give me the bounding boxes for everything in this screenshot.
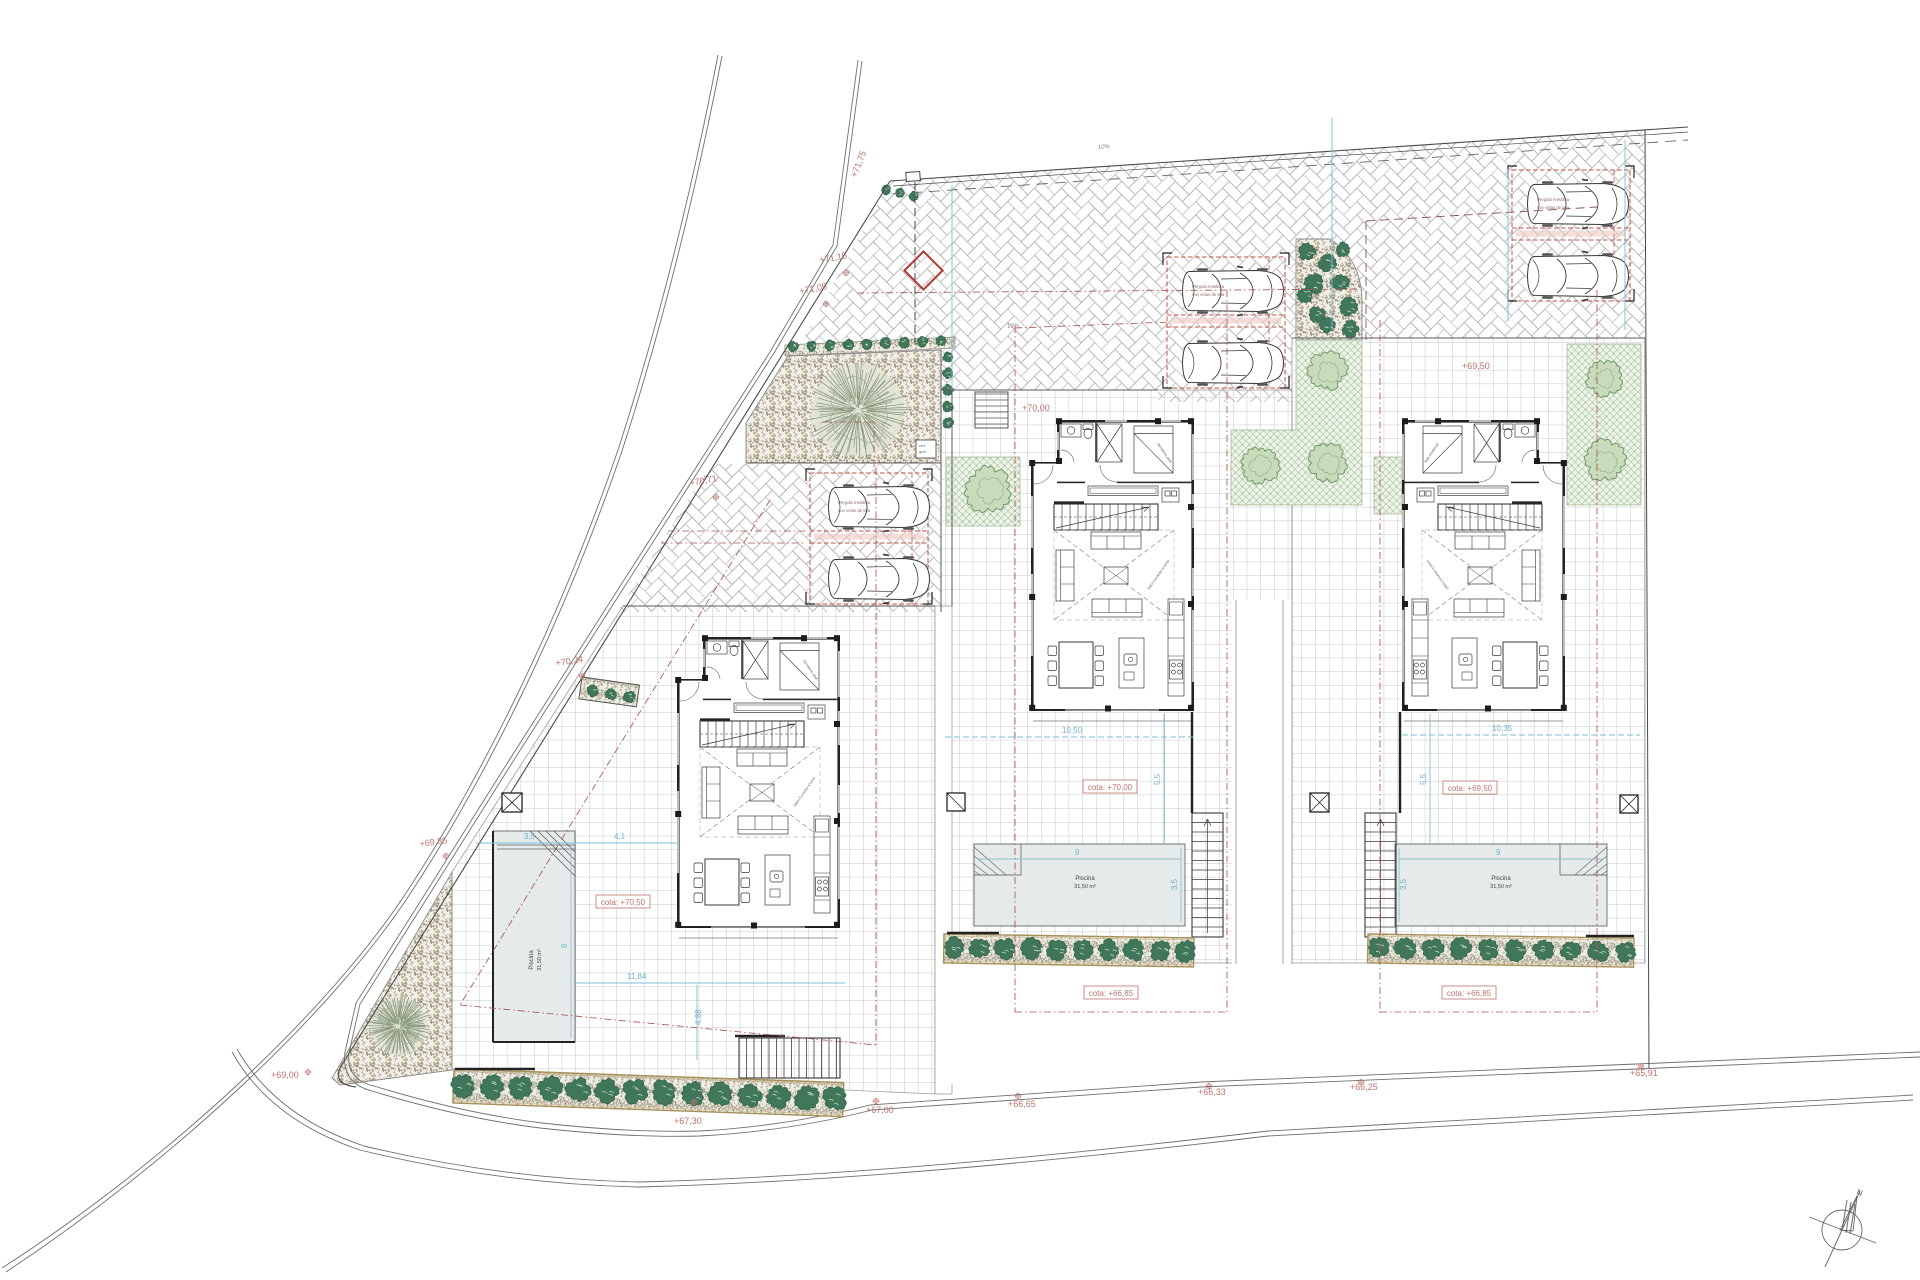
svg-text:Piscina: Piscina	[1491, 876, 1511, 882]
svg-text:31,50 m²: 31,50 m²	[537, 949, 543, 971]
svg-text:10,35: 10,35	[1492, 724, 1513, 733]
svg-text:+67,30: +67,30	[674, 1116, 702, 1126]
svg-text:9: 9	[1496, 848, 1501, 857]
svg-text:cota: +69,50: cota: +69,50	[1448, 784, 1493, 793]
svg-text:+69,50: +69,50	[1462, 361, 1490, 371]
svg-text:4,1: 4,1	[614, 832, 626, 841]
svg-text:6: 6	[560, 943, 569, 948]
svg-text:con velas de tela: con velas de tela	[838, 508, 871, 513]
svg-text:cota: +66,85: cota: +66,85	[1447, 989, 1492, 998]
svg-text:+70,00: +70,00	[1022, 403, 1050, 413]
svg-text:5,5: 5,5	[1419, 773, 1428, 785]
svg-text:Piscina: Piscina	[1075, 876, 1095, 882]
svg-text:10%: 10%	[1007, 323, 1020, 330]
svg-text:Pergola metálica: Pergola metálica	[838, 500, 871, 505]
svg-text:con velas de tela: con velas de tela	[1192, 292, 1225, 297]
svg-text:31,50 m²: 31,50 m²	[1074, 884, 1096, 890]
svg-text:+66,65: +66,65	[1008, 1099, 1036, 1109]
svg-text:+69,00: +69,00	[271, 1070, 299, 1080]
svg-text:4,88: 4,88	[694, 1009, 703, 1025]
svg-text:gral: gral	[919, 449, 926, 454]
svg-text:cota: +70,50: cota: +70,50	[601, 898, 646, 907]
svg-text:11,84: 11,84	[627, 972, 647, 981]
svg-text:3,5: 3,5	[524, 832, 536, 841]
svg-text:5,5: 5,5	[1153, 773, 1162, 785]
svg-text:10,50: 10,50	[1062, 726, 1083, 735]
svg-text:+66,33: +66,33	[1198, 1087, 1226, 1097]
svg-text:cota: +70,00: cota: +70,00	[1088, 783, 1133, 792]
svg-text:cota: +66,85: cota: +66,85	[1089, 989, 1134, 998]
svg-text:3,5: 3,5	[1399, 878, 1408, 890]
svg-text:3,5: 3,5	[1170, 878, 1179, 890]
svg-text:+65,91: +65,91	[1630, 1068, 1658, 1078]
svg-text:+67,00: +67,00	[866, 1105, 894, 1115]
svg-text:10%: 10%	[1098, 144, 1111, 151]
svg-text:31,50 m²: 31,50 m²	[1490, 884, 1512, 890]
svg-text:Pergola metálica: Pergola metálica	[1192, 284, 1225, 289]
svg-text:Piscina: Piscina	[529, 950, 535, 970]
svg-text:Pergola metálica: Pergola metálica	[1537, 197, 1570, 202]
svg-text:red: red	[919, 443, 925, 448]
svg-text:+66,25: +66,25	[1350, 1082, 1378, 1092]
svg-text:9: 9	[1075, 848, 1080, 857]
